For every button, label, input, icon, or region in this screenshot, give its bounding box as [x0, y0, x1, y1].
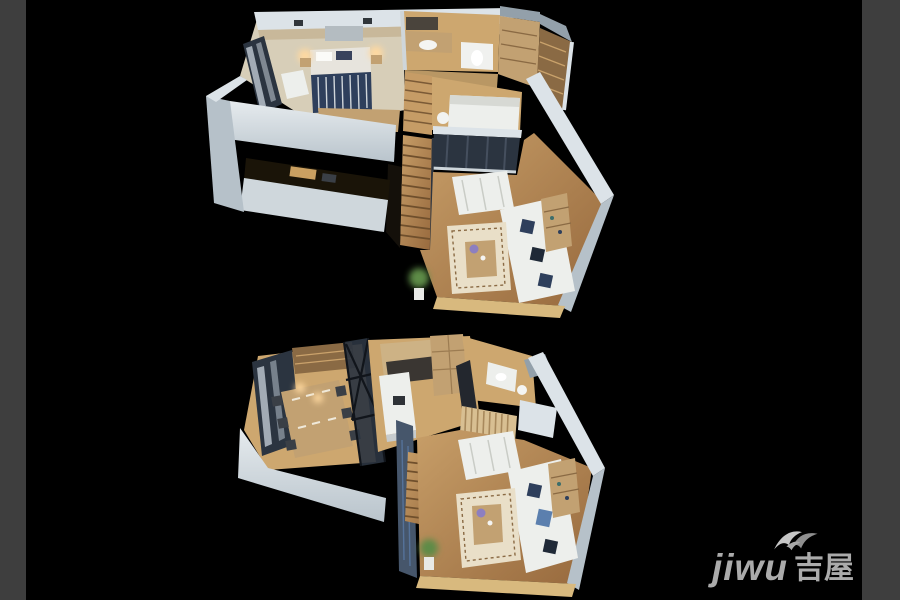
sofa-pillow	[527, 483, 542, 498]
sofa-pillow	[520, 219, 535, 234]
lower-level-plan	[238, 334, 605, 597]
master-bed	[310, 47, 372, 113]
sofa-pillow	[530, 247, 545, 262]
wall-shelf	[548, 458, 580, 518]
potted-plant	[409, 268, 429, 300]
living-rug	[456, 488, 521, 568]
bath-mirror	[406, 17, 438, 30]
second-bedroom	[428, 76, 522, 172]
cooktop	[393, 396, 405, 405]
toilet	[517, 385, 527, 395]
bath-sink	[419, 40, 437, 50]
glazed-balcony	[431, 126, 522, 172]
living-rug	[447, 222, 511, 294]
flower-vase	[477, 509, 486, 518]
flower-vase	[470, 245, 479, 254]
wall-shelf	[541, 193, 572, 252]
round-stool	[437, 112, 449, 124]
toilet	[471, 50, 483, 66]
sofa-pillow	[543, 539, 558, 554]
floorplan-scene	[0, 0, 900, 600]
coffee-table	[472, 504, 503, 545]
entry-bathroom	[456, 336, 557, 442]
dining-room	[238, 338, 386, 522]
sofa-pillow	[538, 273, 553, 288]
hall-closet	[518, 400, 557, 438]
watermark-latin-text: jiwu	[712, 547, 788, 588]
wall-picture	[325, 26, 363, 41]
upper-level-plan	[206, 6, 614, 318]
pendant-lamp	[295, 383, 305, 393]
stair-void	[386, 164, 402, 248]
floorplan-poster: jiwu吉屋	[0, 0, 900, 600]
jiwu-watermark: jiwu吉屋	[712, 528, 882, 586]
second-bed	[448, 95, 520, 131]
pendant-lamp	[313, 393, 323, 403]
watermark-cjk-text: 吉屋	[794, 552, 854, 585]
